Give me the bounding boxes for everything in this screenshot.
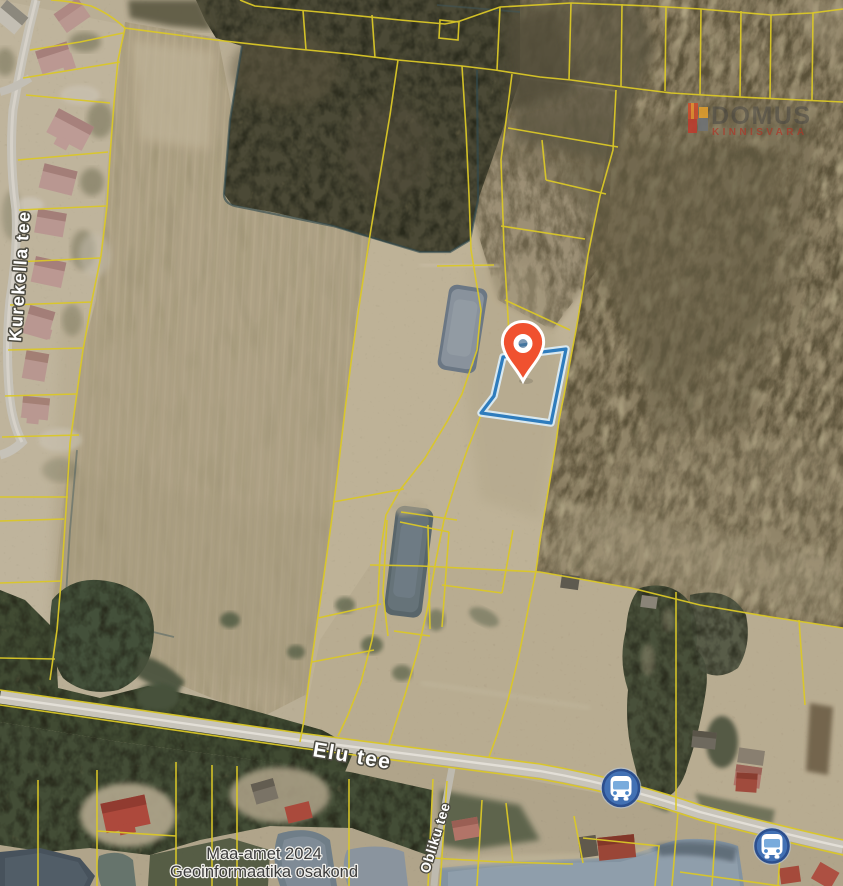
svg-text:Maa-amet 2024: Maa-amet 2024	[206, 845, 322, 863]
svg-text:Geoinformaatika osakond: Geoinformaatika osakond	[170, 863, 358, 881]
svg-text:KINNISVARA: KINNISVARA	[712, 127, 807, 138]
svg-text:DOMUS: DOMUS	[711, 102, 812, 130]
